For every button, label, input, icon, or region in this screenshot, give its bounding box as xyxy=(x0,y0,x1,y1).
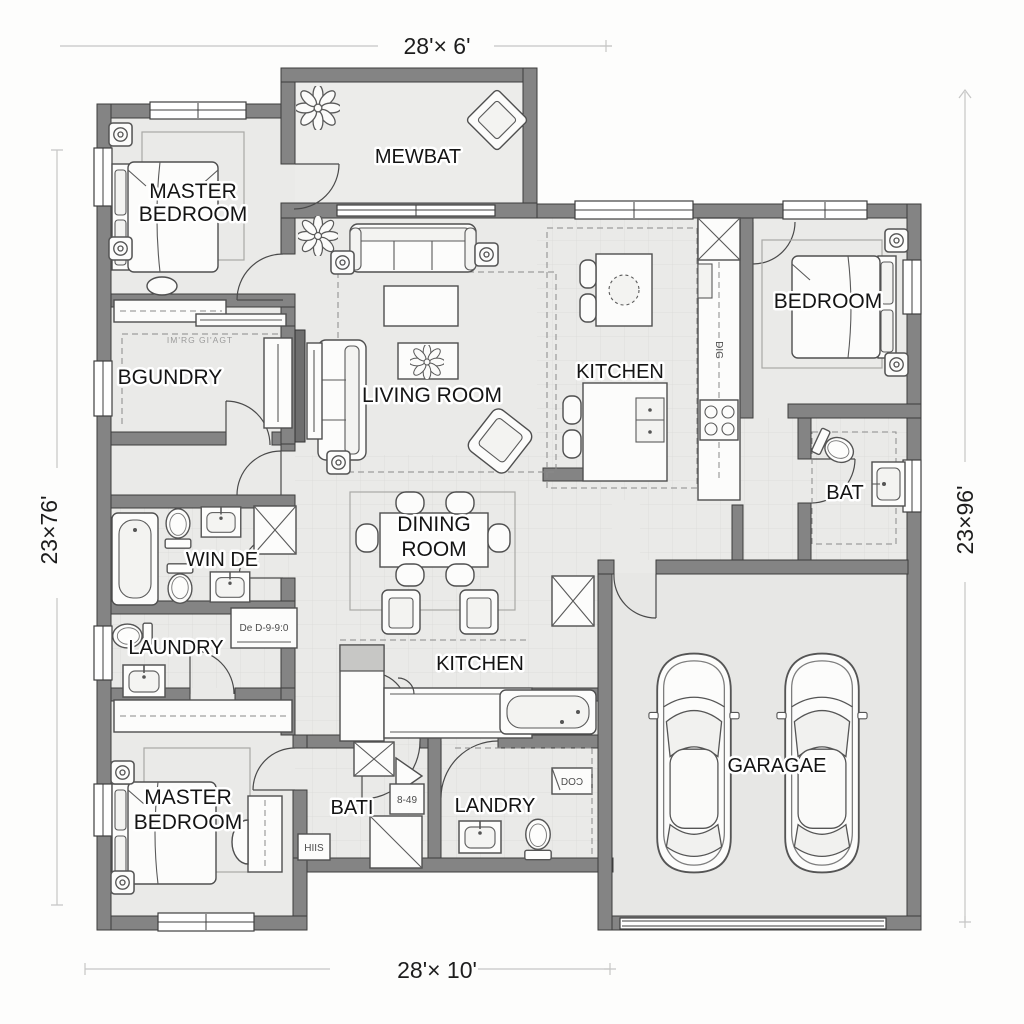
shower-diag xyxy=(370,816,422,868)
toilet-icon xyxy=(165,509,191,548)
note-cabinet-b3: DOƆ xyxy=(561,777,583,788)
label-dining-1: DINING xyxy=(397,513,471,536)
note-cabinet-b1: HIIS xyxy=(304,843,324,854)
plant-icon xyxy=(409,344,445,380)
shower-x xyxy=(254,506,296,554)
sofa xyxy=(350,224,476,272)
mud-closet xyxy=(552,576,594,626)
speaker-icon xyxy=(885,229,908,252)
label-kitchen-lower: KITCHEN xyxy=(436,653,524,675)
stove xyxy=(700,400,738,440)
speaker-icon xyxy=(885,353,908,376)
window xyxy=(94,361,112,416)
counter-sink xyxy=(698,264,712,298)
sofa-vertical xyxy=(318,340,366,460)
window xyxy=(903,460,921,512)
label-bath-bottom: BATI xyxy=(331,797,374,819)
bathtub-h xyxy=(500,690,596,734)
floor-plan-svg: 28'× 6' 28'× 10' 23×76' 23×96' xyxy=(0,0,1024,1024)
label-utility-upper: BGUNDRY xyxy=(118,366,223,389)
window xyxy=(94,148,112,206)
label-living: LIVING ROOM xyxy=(362,384,502,407)
speaker-icon xyxy=(109,123,132,146)
window xyxy=(337,205,495,216)
stool xyxy=(147,277,177,295)
window xyxy=(575,201,693,219)
label-bath-right: BAT xyxy=(826,482,863,504)
window xyxy=(158,913,254,931)
speaker-icon xyxy=(109,237,132,260)
garage-door xyxy=(620,918,886,929)
dimension-left: 23×76' xyxy=(36,496,62,565)
window xyxy=(94,626,112,680)
coffee-table xyxy=(384,286,458,326)
speaker-icon xyxy=(111,761,134,784)
window xyxy=(94,784,112,836)
floor-plan-canvas: 28'× 6' 28'× 10' 23×76' 23×96' xyxy=(0,0,1024,1024)
wall-sink xyxy=(872,462,905,506)
note-cabinet-mid: De D-9-9:0 xyxy=(240,623,289,634)
note-cabinet-b2: 8-49 xyxy=(397,795,417,806)
label-bedroom-right: BEDROOM xyxy=(774,290,883,313)
label-patio: MEWBAT xyxy=(375,146,461,168)
label-master-bottom-2: BEDROOM xyxy=(134,811,243,834)
speaker-icon xyxy=(475,243,498,266)
bathtub xyxy=(112,513,158,605)
label-garage: GARAGAE xyxy=(728,755,827,777)
shelf xyxy=(196,314,286,326)
window xyxy=(150,102,246,119)
label-master-top-1: MASTER xyxy=(149,180,237,203)
label-master-bottom-1: MASTER xyxy=(144,786,232,809)
garage-floor xyxy=(612,573,907,916)
closet-bottom xyxy=(114,700,292,732)
plant-box xyxy=(398,343,458,380)
pantry-x xyxy=(698,218,740,260)
car-icon xyxy=(649,654,739,873)
label-master-top-2: BEDROOM xyxy=(139,203,248,226)
note-closet-top: IM'RG GI'AGT xyxy=(167,335,233,345)
speaker-icon xyxy=(327,451,350,474)
tile-area-hall xyxy=(640,418,907,560)
dimension-top: 28'× 6' xyxy=(404,33,471,59)
speaker-icon xyxy=(111,871,134,894)
label-bath-mid: WIN DE xyxy=(186,549,258,571)
dimension-bottom: 28'× 10' xyxy=(397,957,477,983)
sink-icon xyxy=(210,572,250,602)
sink-icon xyxy=(201,507,241,537)
dimension-right: 23×96' xyxy=(952,486,978,555)
label-kitchen-upper: KITCHEN xyxy=(576,361,664,383)
note-appliance: DIG xyxy=(713,341,724,359)
label-dining-2: ROOM xyxy=(401,538,466,561)
label-laundry-bottom: LANDRY xyxy=(455,795,536,817)
shower-x xyxy=(354,742,394,776)
sink-icon xyxy=(459,821,501,853)
window xyxy=(783,201,867,219)
sink-icon xyxy=(123,665,165,697)
plant-icon xyxy=(295,85,341,131)
window xyxy=(903,260,921,314)
kitchen-counter xyxy=(698,218,740,500)
speaker-icon xyxy=(331,251,354,274)
toilet-icon xyxy=(525,819,551,859)
label-laundry-mid: LAUNDRY xyxy=(128,637,223,659)
